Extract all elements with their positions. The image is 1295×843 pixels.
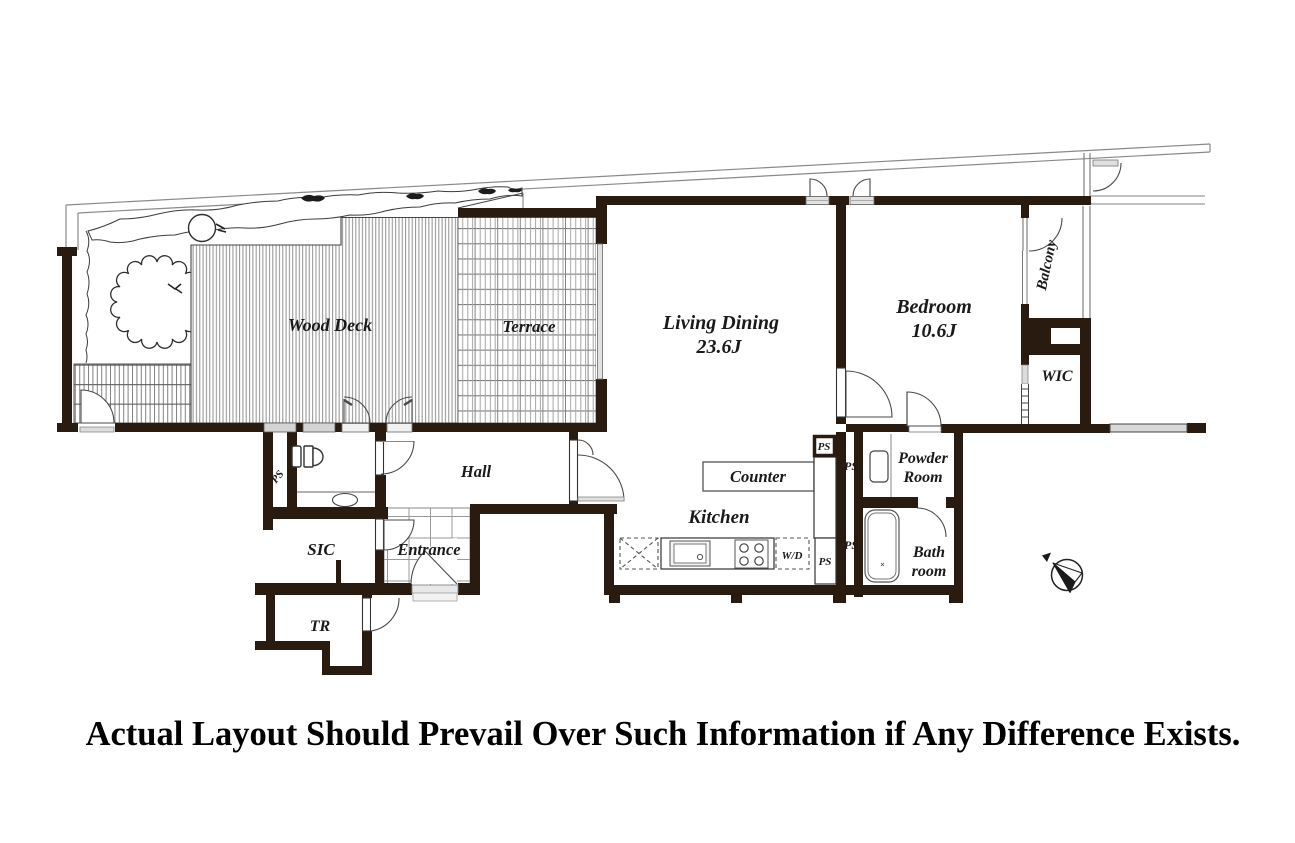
svg-text:Entrance: Entrance [396,540,460,559]
svg-text:PS: PS [844,459,858,473]
svg-text:PS: PS [818,441,831,453]
svg-text:Kitchen: Kitchen [687,507,749,528]
svg-text:Bath: Bath [912,544,945,561]
svg-text:SIC: SIC [307,540,335,559]
svg-text:10.6J: 10.6J [912,320,958,342]
svg-text:Powder: Powder [897,450,949,467]
svg-text:Wood Deck: Wood Deck [288,315,372,335]
svg-text:Room: Room [902,469,942,486]
svg-text:Actual Layout Should Prevail O: Actual Layout Should Prevail Over Such I… [86,715,1241,753]
svg-text:Hall: Hall [460,462,492,481]
svg-text:Counter: Counter [730,467,787,486]
svg-text:room: room [912,563,947,580]
svg-text:23.6J: 23.6J [696,336,743,358]
svg-text:Bedroom: Bedroom [895,296,972,318]
svg-text:Living Dining: Living Dining [662,312,779,334]
svg-text:PS: PS [819,556,832,568]
svg-text:WIC: WIC [1041,368,1072,385]
svg-text:TR: TR [310,618,331,635]
svg-text:PS: PS [844,538,858,552]
svg-text:W/D: W/D [782,550,803,562]
svg-text:Terrace: Terrace [502,317,556,336]
